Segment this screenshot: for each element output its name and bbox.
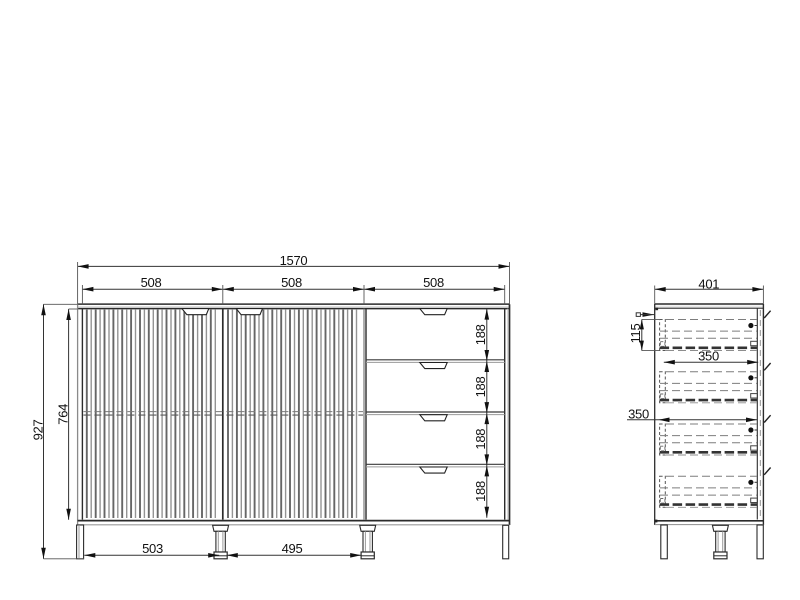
svg-text:495: 495 <box>282 541 303 556</box>
svg-text:350: 350 <box>628 407 649 422</box>
svg-text:508: 508 <box>281 275 302 290</box>
svg-text:350: 350 <box>698 349 719 364</box>
svg-text:764: 764 <box>56 404 71 425</box>
svg-text:508: 508 <box>423 275 444 290</box>
svg-text:188: 188 <box>473 324 488 345</box>
svg-text:503: 503 <box>142 541 163 556</box>
svg-text:188: 188 <box>473 429 488 450</box>
svg-text:401: 401 <box>698 276 719 291</box>
svg-text:115: 115 <box>628 324 643 344</box>
svg-text:188: 188 <box>473 377 488 398</box>
svg-text:1570: 1570 <box>280 253 308 268</box>
svg-text:508: 508 <box>141 275 162 290</box>
svg-text:927: 927 <box>30 420 45 441</box>
svg-text:188: 188 <box>473 481 488 502</box>
